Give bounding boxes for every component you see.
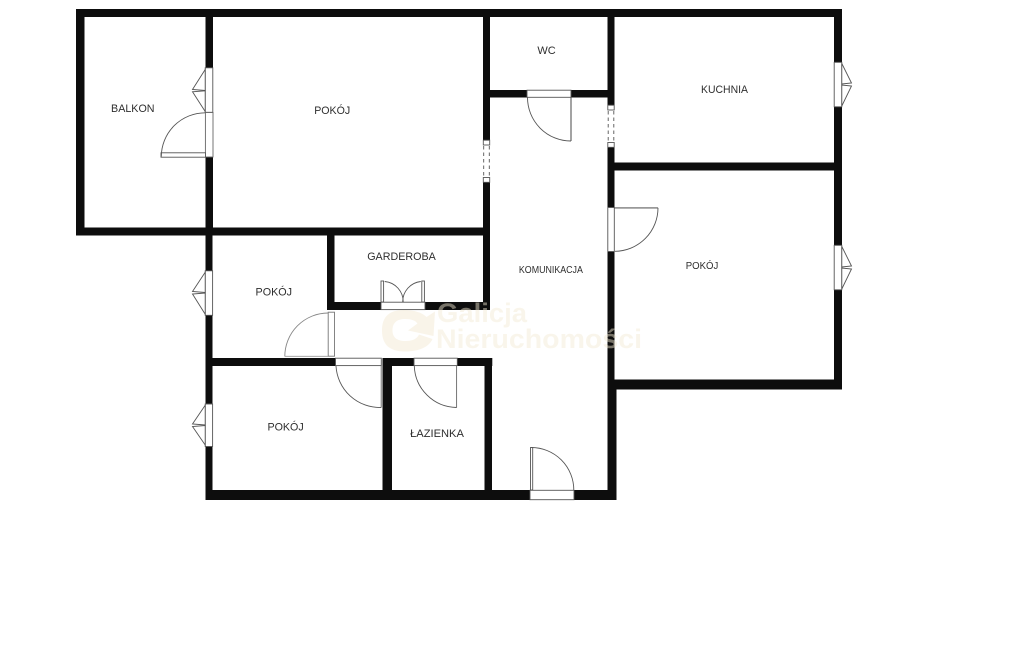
svg-text:POKÓJ: POKÓJ bbox=[256, 286, 293, 299]
svg-text:KOMUNIKACJA: KOMUNIKACJA bbox=[519, 265, 583, 276]
svg-text:BALKON: BALKON bbox=[111, 103, 155, 115]
svg-text:ŁAZIENKA: ŁAZIENKA bbox=[410, 428, 464, 440]
svg-text:GARDEROBA: GARDEROBA bbox=[367, 251, 436, 263]
svg-text:POKÓJ: POKÓJ bbox=[686, 259, 719, 272]
svg-text:POKÓJ: POKÓJ bbox=[267, 421, 303, 434]
svg-text:KUCHNIA: KUCHNIA bbox=[701, 84, 749, 96]
svg-text:WC: WC bbox=[537, 45, 555, 57]
svg-text:Nieruchomości: Nieruchomości bbox=[436, 324, 642, 354]
svg-text:POKÓJ: POKÓJ bbox=[314, 104, 350, 117]
